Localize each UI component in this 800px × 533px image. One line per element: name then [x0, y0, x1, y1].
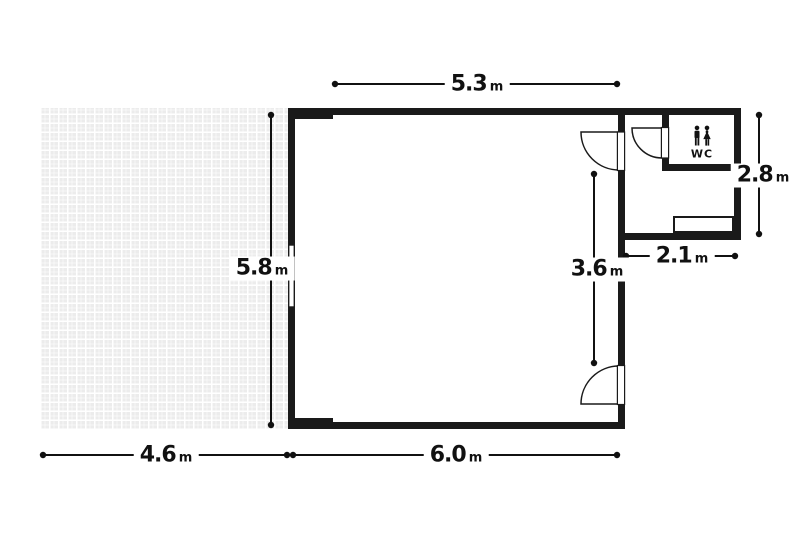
dimension-unit: m — [490, 80, 504, 95]
dimension-value: 5.8 — [236, 256, 272, 281]
dimension-room-width: 6.0m — [424, 444, 489, 468]
dimension-left-height: 5.8m — [230, 257, 295, 281]
wall-wc-inner-bottom — [662, 164, 741, 171]
floor-plan: WC 5.3m 5.8m 3.6m 2.8m 2.1m 4.6m 6.0m — [0, 0, 800, 533]
wall-bottom-thick-segment — [288, 418, 333, 429]
dimension-right-segment: 3.6m — [565, 258, 630, 282]
dimension-unit: m — [776, 171, 790, 186]
dimension-value: 6.0 — [430, 443, 466, 468]
dimension-top-width: 5.3m — [445, 73, 510, 97]
dimension-value: 5.3 — [451, 72, 487, 97]
dimension-unit: m — [695, 252, 709, 267]
dimension-wc-height: 2.8m — [731, 164, 796, 188]
dimension-unit: m — [610, 265, 624, 280]
wc-pictogram-icon — [689, 126, 716, 147]
door-arc-wc — [632, 128, 662, 158]
wall-top — [288, 108, 741, 115]
dimension-value: 2.1 — [656, 244, 692, 269]
wc-label: WC — [691, 148, 713, 161]
dimension-value: 3.6 — [571, 257, 607, 282]
wc-fixture — [673, 216, 734, 233]
wall-wc-bottom — [618, 233, 741, 240]
dimension-unit: m — [179, 451, 193, 466]
dimension-value: 4.6 — [140, 443, 176, 468]
door-arc-right-top — [581, 132, 619, 170]
wall-bottom — [288, 422, 625, 429]
dimension-unit: m — [275, 264, 289, 279]
door-arc-right-bottom — [581, 366, 619, 404]
dimension-wc-width: 2.1m — [650, 245, 715, 269]
dimension-value: 2.8 — [737, 163, 773, 188]
dimension-unit: m — [469, 451, 483, 466]
dimension-terrace-width: 4.6m — [134, 444, 199, 468]
wc-sign: WC — [689, 126, 716, 161]
wall-wc-inner-left — [662, 115, 669, 171]
